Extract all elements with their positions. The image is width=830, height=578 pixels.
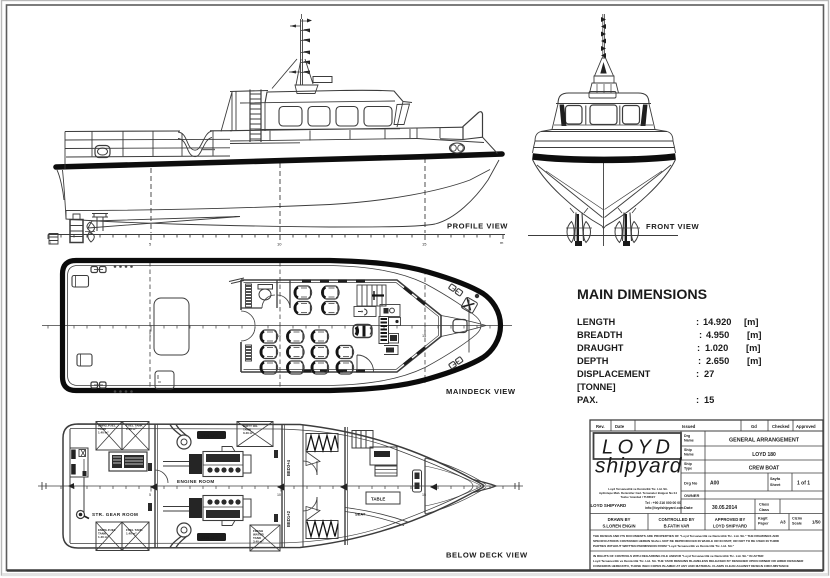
svg-text:[m]: [m] bbox=[747, 356, 761, 366]
svg-text:shipyard: shipyard bbox=[595, 455, 683, 478]
svg-text:Checked: Checked bbox=[772, 424, 790, 429]
svg-text:1.40 m³: 1.40 m³ bbox=[126, 427, 136, 431]
svg-text:30.05.2014: 30.05.2014 bbox=[712, 505, 737, 511]
svg-text:ENGINE ROOM: ENGINE ROOM bbox=[177, 479, 215, 484]
svg-text:DRAWN BY: DRAWN BY bbox=[608, 517, 631, 522]
svg-text:B.FATIH VAR: B.FATIH VAR bbox=[664, 524, 690, 529]
svg-text:1.40 m³: 1.40 m³ bbox=[126, 532, 136, 536]
svg-text:Gd: Gd bbox=[751, 424, 757, 429]
svg-text:BED3+4: BED3+4 bbox=[286, 459, 291, 476]
svg-text:BED1+2: BED1+2 bbox=[286, 510, 291, 527]
svg-text:Date: Date bbox=[684, 505, 693, 510]
svg-text:DEPTH: DEPTH bbox=[577, 356, 609, 366]
svg-text::: : bbox=[696, 395, 699, 405]
svg-text:TABLE: TABLE bbox=[371, 497, 385, 502]
svg-text:GEN SET: GEN SET bbox=[201, 433, 219, 438]
svg-text:BREADTH: BREADTH bbox=[577, 330, 623, 340]
svg-text:Type: Type bbox=[684, 467, 692, 471]
svg-text:LOYD 180: LOYD 180 bbox=[752, 452, 776, 458]
svg-text:SEAT: SEAT bbox=[355, 512, 366, 517]
svg-text:FRONT VIEW: FRONT VIEW bbox=[646, 222, 699, 231]
svg-text:4.950: 4.950 bbox=[706, 330, 729, 340]
svg-text:LOYD SHIPYARD: LOYD SHIPYARD bbox=[713, 524, 747, 529]
svg-text:[m]: [m] bbox=[746, 343, 760, 353]
svg-text:SPECIFICATIONS CONTAINED HEREI: SPECIFICATIONS CONTAINED HEREIN SHALL NO… bbox=[593, 539, 780, 543]
svg-text:CREW BOAT: CREW BOAT bbox=[749, 466, 779, 472]
svg-text:MAINDECK VIEW: MAINDECK VIEW bbox=[446, 387, 516, 396]
svg-text::: : bbox=[698, 356, 701, 366]
svg-text:A00: A00 bbox=[710, 481, 719, 487]
svg-text:GEN SET: GEN SET bbox=[201, 535, 219, 540]
svg-text:1.020: 1.020 bbox=[705, 343, 728, 353]
svg-text:Kagit: Kagit bbox=[758, 517, 768, 521]
svg-text:MAIN DIMENSIONS: MAIN DIMENSIONS bbox=[577, 287, 707, 303]
svg-text:Loyd Tersanecilik ve Denizcili: Loyd Tersanecilik ve Denizcilik Tic. Ltd… bbox=[593, 559, 804, 563]
svg-text:OWNER: OWNER bbox=[684, 493, 699, 498]
svg-text:APPROVED BY: APPROVED BY bbox=[715, 517, 746, 522]
svg-text:3.40 m³: 3.40 m³ bbox=[253, 540, 263, 544]
svg-text:Class: Class bbox=[759, 508, 769, 512]
svg-text:Drg: Drg bbox=[684, 434, 690, 438]
svg-text:DRAUGHT: DRAUGHT bbox=[577, 343, 624, 353]
svg-text:[m]: [m] bbox=[744, 317, 758, 327]
svg-text:Cizim: Cizim bbox=[792, 517, 803, 521]
svg-text::: : bbox=[696, 317, 699, 327]
svg-text:Drg No: Drg No bbox=[684, 481, 698, 486]
svg-text:A3: A3 bbox=[780, 520, 786, 525]
svg-text:Sheet: Sheet bbox=[770, 483, 781, 487]
svg-text:PROFILE VIEW: PROFILE VIEW bbox=[447, 222, 508, 231]
svg-text:27: 27 bbox=[704, 369, 714, 379]
svg-text:Rev.: Rev. bbox=[596, 424, 605, 429]
svg-text:0.40 m³: 0.40 m³ bbox=[243, 431, 253, 435]
svg-text:Sayfa: Sayfa bbox=[770, 477, 781, 481]
svg-text:DISPLACEMENT: DISPLACEMENT bbox=[577, 369, 651, 379]
svg-text:STR. GEAR ROOM: STR. GEAR ROOM bbox=[92, 512, 138, 517]
svg-text:Name: Name bbox=[684, 453, 694, 457]
svg-text:[m]: [m] bbox=[747, 330, 761, 340]
svg-text:GENERAL ARRANGEMENT: GENERAL ARRANGEMENT bbox=[729, 438, 800, 444]
svg-text:[TONNE]: [TONNE] bbox=[577, 382, 616, 392]
svg-text::: : bbox=[699, 330, 702, 340]
svg-text:Tel : +90 216 000 00 00: Tel : +90 216 000 00 00 bbox=[645, 501, 681, 505]
svg-text:Ship: Ship bbox=[684, 448, 693, 452]
svg-text:10: 10 bbox=[277, 242, 282, 247]
svg-text:2.650: 2.650 bbox=[706, 356, 729, 366]
svg-text:BELOW DECK VIEW: BELOW DECK VIEW bbox=[446, 551, 528, 560]
svg-text:Ship: Ship bbox=[684, 462, 693, 466]
svg-text:THE DESIGN AND ITS DOCUMENTS A: THE DESIGN AND ITS DOCUMENTS ARE PROPERT… bbox=[593, 534, 780, 538]
svg-text:1/50: 1/50 bbox=[812, 520, 821, 525]
svg-text:14.920: 14.920 bbox=[703, 317, 731, 327]
svg-text:CONTROLLED BY: CONTROLLED BY bbox=[658, 517, 694, 522]
svg-text:Name: Name bbox=[684, 439, 694, 443]
svg-text:10: 10 bbox=[277, 493, 281, 497]
svg-text::: : bbox=[696, 369, 699, 379]
svg-text:15: 15 bbox=[422, 242, 427, 247]
svg-text:1 of 1: 1 of 1 bbox=[797, 481, 810, 487]
svg-text:1.40 m³: 1.40 m³ bbox=[98, 431, 108, 435]
svg-text:Paper: Paper bbox=[758, 522, 769, 526]
svg-text:CONCERNS HEREUNTO, THOSE WHO C: CONCERNS HEREUNTO, THOSE WHO COPES BLAME… bbox=[593, 564, 789, 568]
svg-text:S.LOREN ENGIN: S.LOREN ENGIN bbox=[602, 524, 635, 529]
svg-text:LOYD SHIPYARD: LOYD SHIPYARD bbox=[591, 503, 627, 508]
svg-text::: : bbox=[697, 343, 700, 353]
svg-text:IN RIGHTS OF CONTROLS WITH REG: IN RIGHTS OF CONTROLS WITH REGARDING FIL… bbox=[593, 554, 764, 558]
svg-text:Issued: Issued bbox=[682, 424, 696, 429]
svg-text:PARTIES WITHOUT WRITTEN PERMI: PARTIES WITHOUT WRITTEN PERMISSION FROM … bbox=[593, 544, 735, 548]
svg-text:info@loydshipyard.com: info@loydshipyard.com bbox=[645, 506, 684, 510]
svg-text:1.40 m³: 1.40 m³ bbox=[98, 535, 108, 539]
svg-text:Scale: Scale bbox=[792, 522, 802, 526]
svg-text:Class: Class bbox=[759, 503, 769, 507]
svg-text:Tuzla / Istanbul / TURKEY: Tuzla / Istanbul / TURKEY bbox=[621, 495, 656, 499]
svg-text:15: 15 bbox=[704, 395, 714, 405]
svg-text:15: 15 bbox=[422, 334, 426, 338]
svg-text:PAX.: PAX. bbox=[577, 395, 598, 405]
svg-text:5: 5 bbox=[149, 493, 151, 497]
svg-text:Date: Date bbox=[615, 424, 625, 429]
svg-text:Approved: Approved bbox=[796, 424, 816, 429]
svg-text:LENGTH: LENGTH bbox=[577, 317, 616, 327]
